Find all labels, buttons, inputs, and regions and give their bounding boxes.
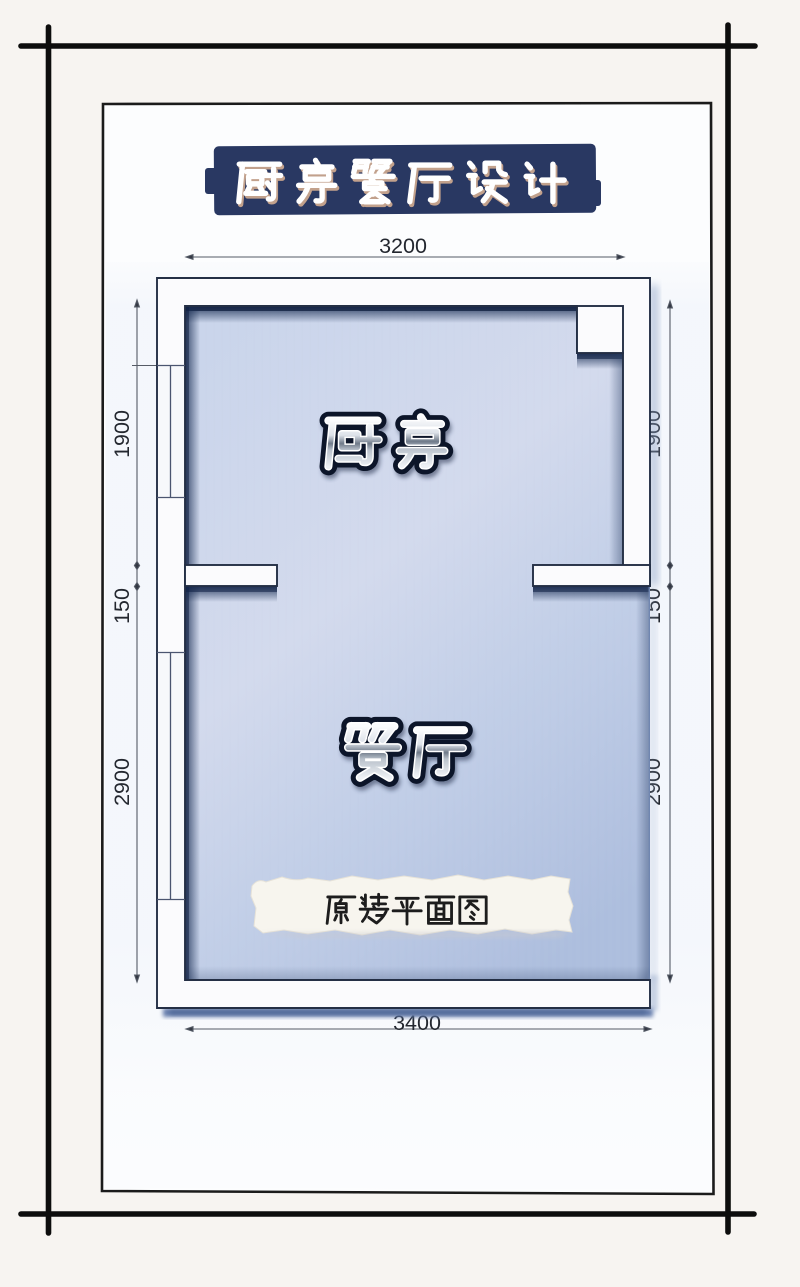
- svg-text:1900: 1900: [110, 410, 134, 458]
- svg-text:2900: 2900: [110, 758, 134, 806]
- svg-text:3200: 3200: [379, 234, 427, 258]
- svg-text:150: 150: [110, 588, 134, 624]
